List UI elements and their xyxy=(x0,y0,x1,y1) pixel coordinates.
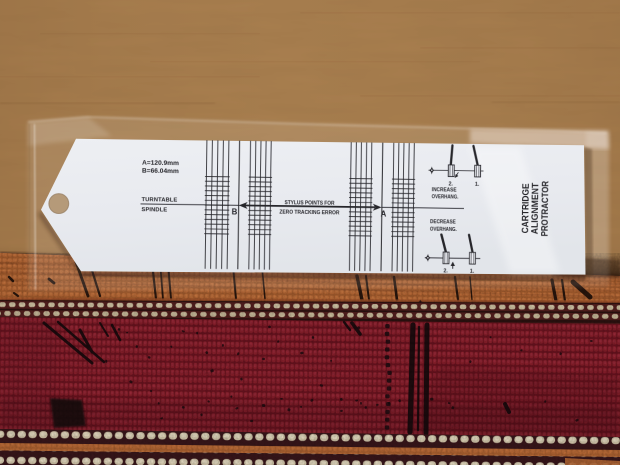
svg-text:OVERHANG.: OVERHANG. xyxy=(430,226,457,232)
svg-text:2.: 2. xyxy=(449,181,454,187)
svg-text:OVERHANG.: OVERHANG. xyxy=(432,194,459,200)
svg-text:1.: 1. xyxy=(475,182,480,188)
svg-text:SPINDLE: SPINDLE xyxy=(141,207,167,213)
svg-text:B: B xyxy=(232,207,238,216)
svg-text:PROTRACTOR: PROTRACTOR xyxy=(539,180,550,236)
svg-text:B=66.04mm: B=66.04mm xyxy=(142,168,179,176)
svg-text:ZERO TRACKING ERROR: ZERO TRACKING ERROR xyxy=(279,209,340,216)
svg-text:A=120.9mm: A=120.9mm xyxy=(142,160,179,168)
svg-text:DECREASE: DECREASE xyxy=(430,219,456,225)
svg-text:STYLUS POINTS FOR: STYLUS POINTS FOR xyxy=(284,200,335,207)
svg-text:1.: 1. xyxy=(470,269,475,275)
svg-text:2.: 2. xyxy=(443,268,448,274)
svg-text:INCREASE: INCREASE xyxy=(432,187,457,193)
svg-text:TURNTABLE: TURNTABLE xyxy=(142,197,178,204)
svg-text:A: A xyxy=(381,210,387,219)
